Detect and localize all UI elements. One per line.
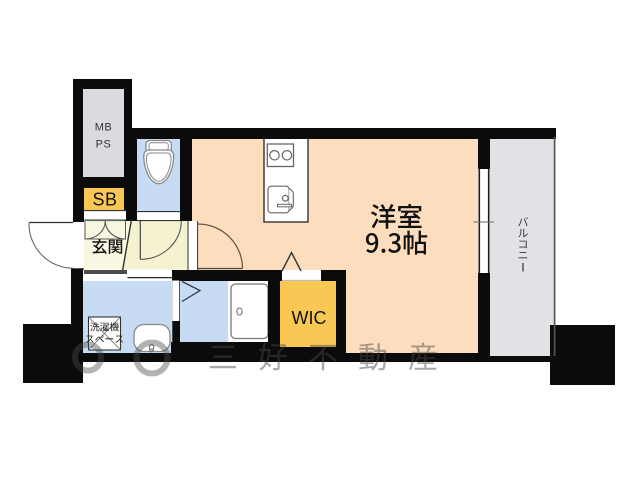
svg-text:PS: PS [96, 139, 112, 151]
svg-text:MB: MB [95, 122, 113, 134]
svg-text:SB: SB [92, 190, 117, 210]
svg-text:WIC: WIC [292, 308, 327, 328]
